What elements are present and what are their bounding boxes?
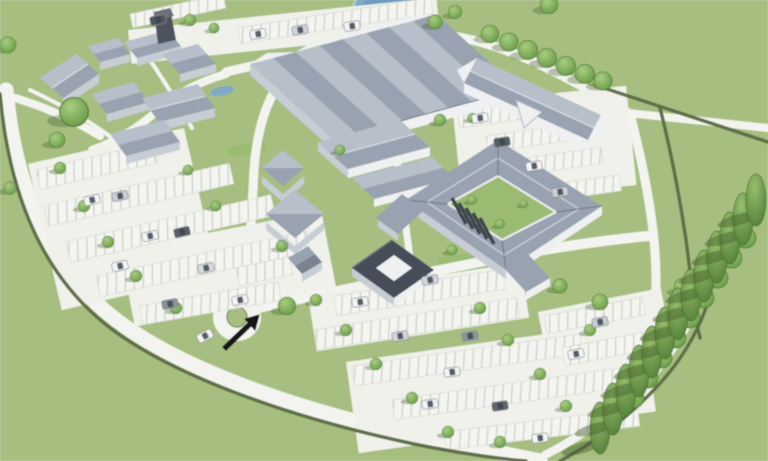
site-plan-rendering: 3D aerial masterplan rendering of a camp…: [0, 0, 768, 461]
car: [421, 398, 438, 409]
car: [443, 366, 460, 377]
car: [525, 160, 542, 171]
car: [471, 112, 488, 123]
site-plan-canvas: 3D aerial masterplan rendering of a camp…: [0, 0, 768, 461]
car: [491, 400, 508, 411]
roundabout-island: [227, 307, 247, 327]
car: [532, 433, 549, 444]
tree: [0, 37, 16, 53]
car: [493, 136, 510, 147]
car: [551, 186, 568, 197]
